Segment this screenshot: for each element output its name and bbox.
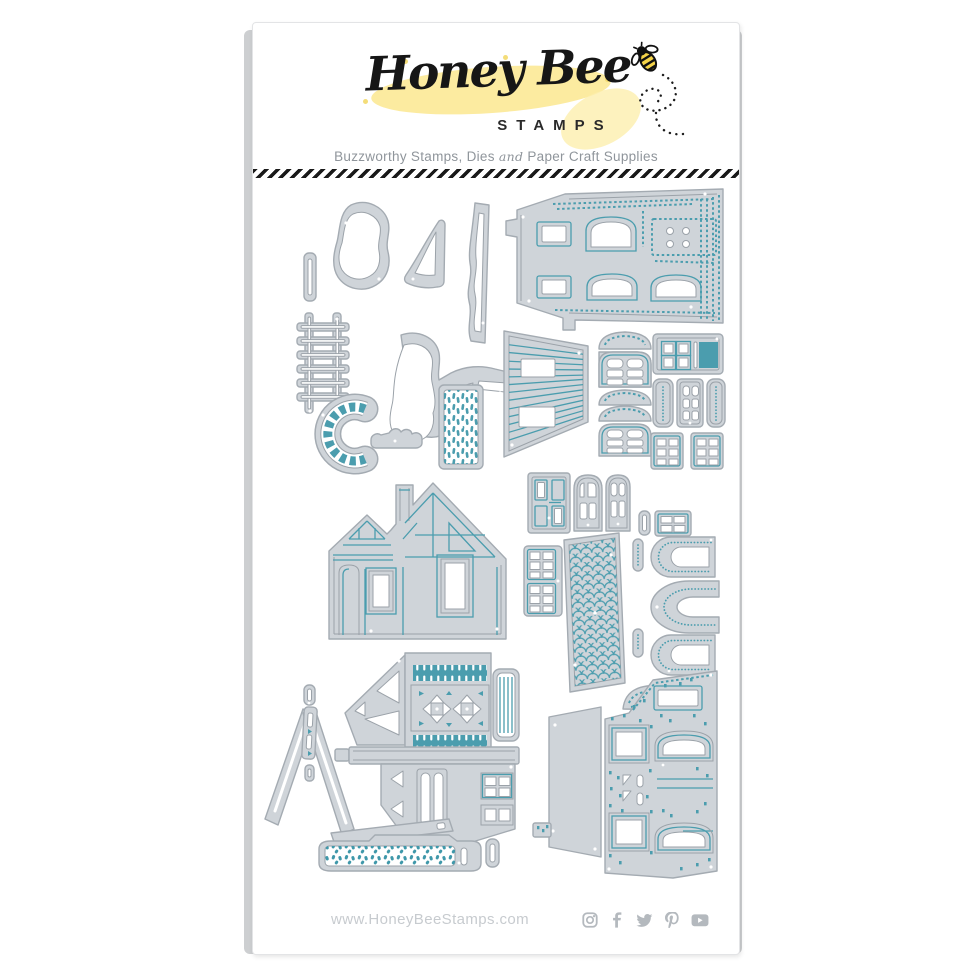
die-six-pane-window-pair <box>651 433 723 469</box>
die-arch-frame <box>651 581 719 633</box>
die-porch-side-panel <box>533 707 601 857</box>
tagline-and: and <box>499 149 523 164</box>
die-shingle-roof-panel <box>564 533 625 692</box>
tagline-part2: Paper Craft Supplies <box>527 149 658 164</box>
die-stacked-six-pane-windows <box>524 546 562 616</box>
brand-logo: Honey Bee STAMPS <box>253 37 739 149</box>
striped-divider <box>253 169 739 178</box>
die-bush-small <box>405 220 445 288</box>
die-awning-arch-window-set <box>599 332 651 456</box>
product-card: Honey Bee STAMPS Buzzworthy Stamps, Dies… <box>252 22 740 955</box>
die-clapboard-wall <box>503 331 589 457</box>
die-pebble-path-strip <box>319 835 481 871</box>
brand-tagline: Buzzworthy Stamps, Dies and Paper Craft … <box>253 149 739 164</box>
die-arched-window-top <box>633 537 715 577</box>
die-bush-large <box>334 203 389 290</box>
social-icons <box>582 912 709 928</box>
pinterest-icon <box>664 912 680 928</box>
youtube-icon <box>691 912 709 928</box>
die-shutter-set <box>653 379 725 427</box>
brand-word-stamps: STAMPS <box>253 117 739 134</box>
instagram-icon <box>582 912 598 928</box>
die-stone-path-arch <box>321 407 365 461</box>
product-photo: Honey Bee STAMPS Buzzworthy Stamps, Dies… <box>0 0 970 970</box>
die-stone-panel <box>439 385 483 469</box>
die-brick-house-wall <box>605 671 717 878</box>
die-small-pill <box>639 511 650 535</box>
die-treeline-strip <box>468 203 489 343</box>
die-victorian-side-wall <box>335 653 519 843</box>
die-cut-sheet <box>253 183 739 889</box>
card-footer: www.HoneyBeeStamps.com <box>253 911 739 928</box>
die-arched-door-small <box>606 475 630 531</box>
website-url: www.HoneyBeeStamps.com <box>331 911 529 928</box>
die-twig-stick <box>304 253 316 301</box>
die-townhouse-side-wall <box>506 189 723 330</box>
die-four-pane-window <box>655 511 691 536</box>
facebook-icon <box>609 912 625 928</box>
bee-dotted-trail <box>583 71 695 155</box>
die-arched-window-bottom <box>633 629 715 675</box>
die-paneled-door <box>528 473 570 533</box>
tagline-part1: Buzzworthy Stamps, Dies <box>334 149 495 164</box>
die-end-pill <box>486 839 499 867</box>
die-arched-door-large <box>574 475 602 531</box>
die-cottage-front <box>329 483 506 639</box>
die-kitchen-window <box>653 334 723 374</box>
twitter-icon <box>636 912 653 928</box>
